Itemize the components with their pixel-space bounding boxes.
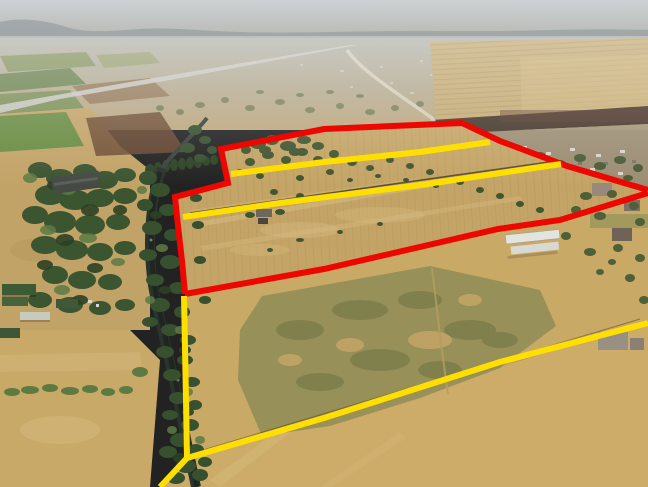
aerial-screenshot	[0, 0, 648, 487]
aerial-photo	[0, 0, 648, 487]
haze	[0, 36, 648, 186]
